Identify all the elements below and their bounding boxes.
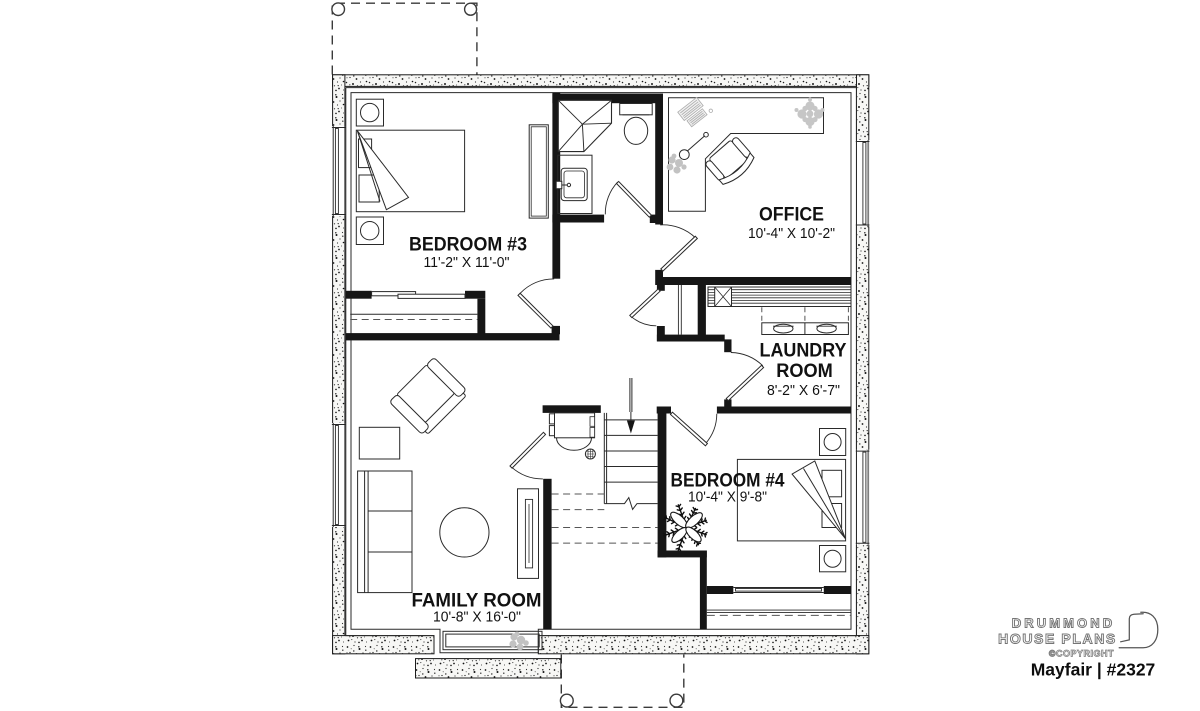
svg-text:OFFICE: OFFICE <box>759 205 824 226</box>
svg-text:DRUMMOND: DRUMMOND <box>1012 616 1116 631</box>
svg-text:ROOM: ROOM <box>776 361 833 382</box>
svg-text:Mayfair | #2327: Mayfair | #2327 <box>1031 660 1156 680</box>
svg-text:10'-8" X 16'-0": 10'-8" X 16'-0" <box>433 610 521 626</box>
svg-text:©COPYRIGHT: ©COPYRIGHT <box>1049 649 1114 659</box>
svg-text:FAMILY ROOM: FAMILY ROOM <box>412 591 542 612</box>
svg-text:LAUNDRY: LAUNDRY <box>760 341 847 362</box>
svg-text:10'-4" X 10'-2": 10'-4" X 10'-2" <box>748 226 835 242</box>
svg-text:10'-4" X 9'-8": 10'-4" X 9'-8" <box>688 490 767 506</box>
svg-text:HOUSE PLANS: HOUSE PLANS <box>998 631 1117 647</box>
svg-text:8'-2" X 6'-7": 8'-2" X 6'-7" <box>767 383 840 399</box>
svg-text:BEDROOM #4: BEDROOM #4 <box>671 471 785 492</box>
svg-text:11'-2" X 11'-0": 11'-2" X 11'-0" <box>424 255 510 271</box>
svg-text:BEDROOM #3: BEDROOM #3 <box>409 235 527 256</box>
